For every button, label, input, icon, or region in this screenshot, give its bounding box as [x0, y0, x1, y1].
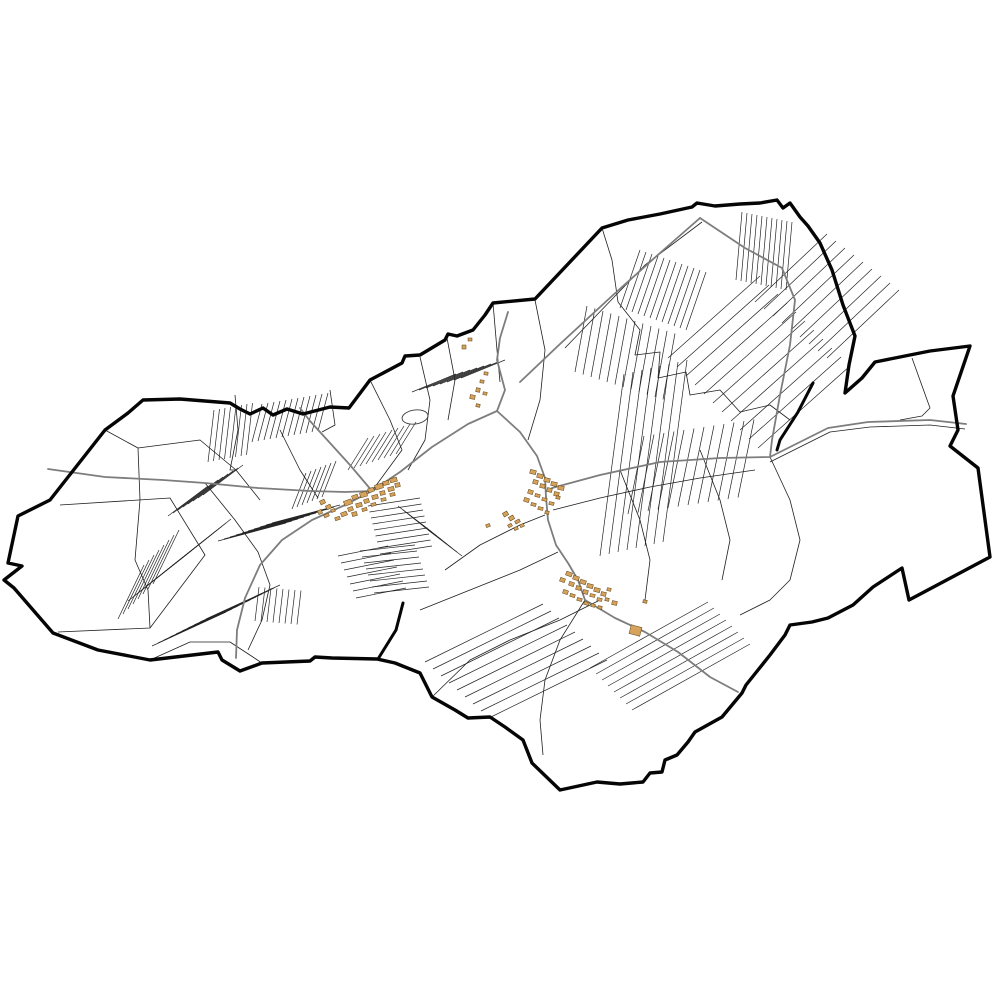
strip-parcel-line — [390, 424, 410, 456]
building-footprint — [556, 496, 560, 500]
strip-parcel-line — [686, 294, 778, 376]
municipal-boundary-outline — [4, 200, 990, 790]
strip-parcel-line — [374, 587, 429, 593]
building-footprint — [381, 498, 387, 502]
building-footprint — [508, 523, 513, 528]
parcel-boundary-line — [900, 358, 930, 420]
strip-parcel-line — [242, 515, 310, 533]
building-footprint — [562, 589, 568, 594]
building-footprint — [565, 571, 572, 577]
building-footprint — [486, 523, 491, 527]
building-footprint — [594, 587, 601, 592]
building-footprint — [524, 497, 530, 502]
building-footprint — [558, 486, 565, 491]
building-footprint — [380, 491, 386, 496]
building-footprint — [547, 488, 553, 493]
parcel-boundary-line — [432, 600, 600, 697]
strip-parcel-line — [173, 483, 213, 513]
building-footprint — [331, 508, 336, 512]
strip-parcel-line — [465, 639, 583, 697]
strip-parcel-line — [118, 565, 144, 619]
road-line — [497, 411, 546, 497]
strip-parcel-line — [761, 217, 767, 285]
strip-parcel-line — [270, 401, 280, 439]
strip-parcel-line — [749, 357, 841, 439]
parcel-boundary-line — [602, 228, 618, 302]
strip-parcel-line — [133, 550, 159, 604]
strip-parcel-line — [370, 504, 422, 512]
strip-parcel-line — [288, 398, 298, 436]
building-footprint — [530, 469, 537, 474]
parcel-boundary-line — [540, 600, 585, 755]
inner-boundary-segment — [378, 603, 403, 659]
building-footprint — [545, 511, 549, 515]
strip-parcel-line — [827, 290, 899, 358]
building-footprint — [514, 526, 519, 530]
building-footprint — [570, 593, 576, 597]
strip-parcel-line — [362, 551, 417, 557]
strip-parcel-line — [441, 618, 559, 676]
strip-parcel-line — [473, 646, 591, 704]
strip-parcel-line — [128, 555, 154, 609]
strip-parcel-line — [291, 590, 295, 624]
strip-parcel-line — [225, 407, 231, 459]
strip-parcel-line — [380, 546, 432, 554]
strip-parcel-line — [188, 474, 228, 504]
strip-parcel-line — [758, 366, 850, 448]
strip-parcel-line — [698, 426, 714, 504]
strip-parcel-line — [449, 625, 567, 683]
strip-parcel-line — [208, 410, 214, 462]
strip-parcel-line — [364, 557, 419, 563]
strip-parcel-line — [751, 215, 757, 283]
strip-parcel-line — [307, 467, 321, 503]
building-footprint — [535, 493, 541, 497]
building-footprint — [335, 516, 341, 521]
building-footprint — [643, 600, 647, 604]
strip-parcel-line — [248, 513, 316, 531]
strip-parcel-line — [620, 632, 738, 698]
building-footprint — [601, 592, 607, 597]
building-footprint — [476, 404, 480, 408]
strip-parcel-line — [756, 216, 762, 284]
strip-parcel-line — [366, 432, 386, 464]
road-line — [700, 218, 795, 457]
strip-parcel-line — [454, 362, 498, 380]
strip-parcel-line — [368, 569, 423, 575]
building-footprint — [371, 502, 377, 506]
strip-parcel-line — [722, 330, 814, 412]
building-footprint — [629, 625, 642, 637]
building-footprint — [587, 583, 594, 588]
building-footprint — [520, 523, 525, 527]
strip-parcel-line — [285, 590, 289, 624]
building-footprint — [607, 588, 612, 592]
building-footprint — [590, 594, 596, 598]
building-footprint — [515, 519, 521, 524]
strip-parcel-line — [297, 591, 301, 625]
building-footprint — [364, 498, 370, 503]
building-footprint — [605, 598, 609, 602]
building-footprint — [388, 486, 395, 491]
strip-parcel-line — [218, 523, 286, 541]
strip-parcel-line — [426, 370, 470, 388]
parcel-boundary-line — [528, 300, 545, 440]
strip-parcel-line — [372, 430, 392, 462]
parcel-boundary-line — [420, 552, 558, 610]
building-footprint — [531, 502, 537, 506]
strip-parcel-line — [668, 276, 760, 358]
building-footprint — [551, 481, 558, 486]
strip-parcel-line — [374, 522, 426, 530]
parcel-boundary-line — [322, 390, 335, 432]
building-footprint — [480, 380, 484, 383]
building-footprint — [356, 502, 363, 507]
strip-parcel-line — [377, 534, 429, 542]
parcel-boundary-line — [445, 515, 545, 570]
building-footprint — [540, 484, 546, 489]
building-footprint — [340, 511, 347, 517]
parcel-boundary-line — [770, 425, 965, 462]
strip-parcel-line — [138, 545, 164, 599]
building-footprint — [549, 502, 555, 506]
cadastral-map-canvas — [0, 0, 1000, 1000]
strip-parcel-line — [728, 421, 744, 499]
strip-parcel-line — [350, 574, 400, 584]
strip-parcel-line — [353, 581, 403, 591]
inner-boundary-segment — [777, 383, 813, 450]
building-footprint — [343, 499, 352, 506]
strip-parcel-line — [143, 540, 169, 594]
strip-parcel-line — [688, 427, 704, 505]
building-footprint — [537, 473, 544, 478]
building-footprint — [484, 372, 488, 375]
parcel-boundary-line — [618, 302, 790, 420]
strip-parcel-line — [219, 408, 225, 460]
strip-parcel-line — [791, 262, 863, 330]
road-line — [497, 312, 508, 411]
strip-parcel-line — [267, 588, 271, 622]
building-footprint — [483, 392, 487, 396]
parcel-boundary-line — [280, 430, 318, 498]
strip-parcel-line — [695, 303, 787, 385]
strip-parcel-line — [360, 434, 380, 466]
strip-parcel-line — [230, 519, 298, 537]
strip-parcel-line — [338, 546, 388, 556]
strip-parcel-line — [740, 348, 832, 430]
strip-parcel-line — [766, 218, 772, 286]
building-footprint — [580, 579, 587, 585]
building-footprint — [569, 581, 575, 586]
strip-parcel-line — [658, 432, 674, 510]
building-footprint — [468, 338, 472, 341]
building-footprint — [612, 601, 618, 606]
strip-parcel-line — [457, 632, 575, 690]
road-line — [546, 497, 585, 600]
parcel-boundary-line — [58, 498, 205, 632]
strip-parcel-line — [738, 420, 754, 498]
strip-parcel-line — [203, 465, 243, 495]
municipal-boundary-layer — [4, 200, 990, 790]
building-footprint — [470, 395, 476, 400]
building-footprint — [598, 606, 602, 610]
strip-parcel-line — [317, 463, 331, 499]
strip-parcel-line — [206, 585, 280, 619]
building-footprint — [528, 489, 534, 494]
strip-parcel-line — [376, 528, 428, 536]
strip-parcel-line — [371, 510, 423, 518]
strip-parcel-line — [168, 486, 208, 516]
strip-parcel-line — [312, 465, 326, 501]
road-line — [585, 600, 738, 692]
strip-parcel-line — [632, 644, 750, 710]
strip-parcel-line — [279, 589, 283, 623]
road-line — [520, 218, 700, 382]
strip-parcel-line — [230, 406, 236, 458]
building-footprint — [390, 493, 395, 497]
building-footprint — [577, 597, 583, 601]
building-footprint — [383, 480, 390, 485]
strip-parcel-line — [302, 469, 316, 505]
strip-parcel-line — [214, 409, 220, 461]
strip-parcel-line — [282, 399, 292, 437]
strip-parcel-line — [294, 397, 304, 435]
strip-field-parcels-layer — [118, 212, 899, 718]
strip-parcel-line — [318, 393, 328, 431]
strip-parcel-line — [614, 626, 732, 692]
building-footprint — [462, 345, 466, 349]
strip-parcel-line — [356, 588, 406, 598]
strip-parcel-line — [412, 374, 456, 392]
strip-parcel-line — [628, 436, 644, 514]
strip-parcel-line — [341, 553, 391, 563]
building-footprint — [538, 507, 544, 511]
building-footprint — [508, 515, 514, 521]
parcel-boundary-line — [740, 457, 800, 615]
strip-parcel-line — [153, 530, 179, 584]
building-footprint — [319, 499, 325, 505]
building-footprint — [395, 483, 401, 488]
building-footprint — [573, 575, 580, 581]
strip-parcel-line — [379, 540, 431, 548]
strip-parcel-line — [481, 653, 599, 711]
building-footprint — [559, 577, 565, 582]
strip-parcel-line — [678, 429, 694, 507]
strip-parcel-line — [648, 433, 664, 511]
strip-parcel-line — [396, 422, 416, 454]
strip-parcel-line — [428, 530, 462, 556]
strip-parcel-line — [255, 587, 259, 621]
strip-parcel-line — [433, 368, 477, 386]
building-footprint — [352, 511, 358, 516]
strip-parcel-line — [148, 535, 174, 589]
strip-parcel-line — [746, 214, 752, 282]
road-network-layer — [48, 218, 966, 692]
building-footprint — [533, 479, 539, 484]
strip-parcel-line — [771, 219, 777, 287]
strip-parcel-line — [489, 660, 607, 718]
cadastral-map-page — [0, 0, 1000, 1000]
building-footprint — [476, 388, 481, 393]
building-footprint — [591, 604, 596, 608]
parcel-boundary-line — [105, 430, 150, 628]
strip-parcel-line — [193, 471, 233, 501]
strip-parcel-line — [626, 638, 744, 704]
building-footprint — [347, 506, 353, 511]
building-footprint — [502, 511, 508, 517]
building-footprint — [374, 483, 383, 490]
strip-parcel-line — [718, 423, 734, 501]
building-footprint — [372, 494, 379, 499]
building-footprint — [362, 507, 368, 511]
strip-parcel-line — [224, 521, 292, 539]
strip-parcel-line — [440, 366, 484, 384]
strip-parcel-line — [273, 589, 277, 623]
strip-parcel-line — [378, 428, 398, 460]
strip-parcel-line — [354, 436, 374, 468]
strip-parcel-line — [433, 611, 551, 669]
strip-parcel-line — [173, 519, 231, 565]
